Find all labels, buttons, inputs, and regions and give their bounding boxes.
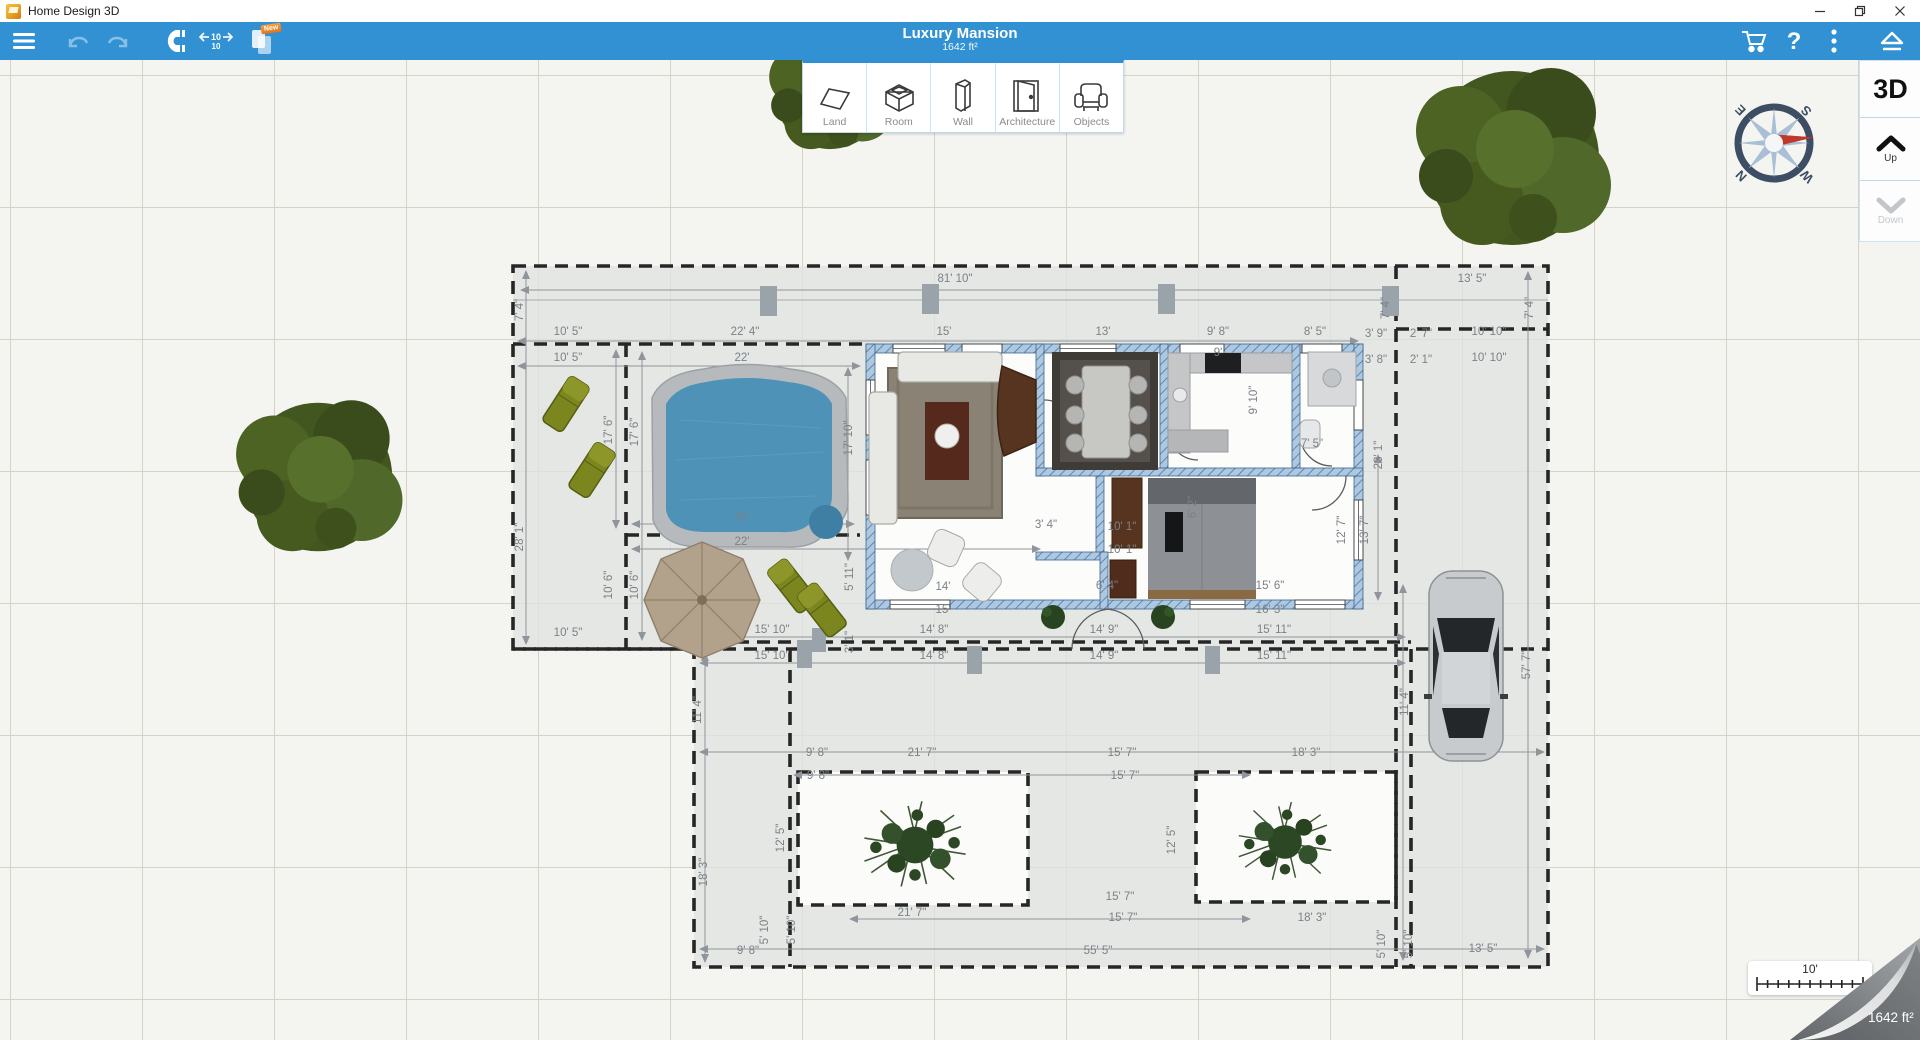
project-area: 1642 ft² [0,42,1920,53]
svg-text:22': 22' [735,352,750,364]
svg-text:13' 5": 13' 5" [1458,273,1487,285]
redo-button[interactable] [98,22,138,60]
svg-text:57' 7": 57' 7" [1521,651,1533,680]
dining-set[interactable] [1052,352,1158,470]
magnet-icon [163,28,189,54]
svg-text:81' 10": 81' 10" [937,273,972,285]
svg-text:18' 3": 18' 3" [698,858,710,887]
svg-text:11' 4": 11' 4" [1399,688,1411,716]
cart-icon [1741,29,1767,53]
svg-text:10' 1": 10' 1" [1108,521,1137,533]
land-icon [816,82,854,114]
tool-land[interactable]: Land [803,63,867,132]
wall-icon [950,78,976,114]
view-3d-button[interactable]: 3D [1860,61,1920,118]
svg-text:9' 8": 9' 8" [807,770,829,782]
svg-text:13' 7": 13' 7" [1359,516,1371,545]
svg-text:14' 8": 14' 8" [920,650,949,662]
floor-plan[interactable]: 81' 10"13' 5"7' 4"7' 4"7' 4"10' 5"22' 4"… [0,60,1920,1040]
svg-text:5' 10": 5' 10" [1376,930,1388,959]
svg-text:10' 1": 10' 1" [1108,544,1137,556]
redo-icon [106,32,130,50]
svg-text:15' 11": 15' 11" [1257,624,1291,636]
clipboard-button[interactable]: New [242,22,282,60]
svg-text:10: 10 [211,32,221,42]
main-toolbar: 10 10 New Luxury Mansion 1642 ft² ? [0,22,1920,60]
svg-text:22': 22' [735,536,750,548]
chevron-up-icon [1876,134,1906,152]
measure-tool-button[interactable]: 10 10 [196,22,236,60]
svg-text:15' 7": 15' 7" [1106,891,1135,903]
svg-text:3' 8": 3' 8" [1365,354,1387,366]
svg-text:14' 9": 14' 9" [1090,650,1119,662]
svg-text:22' 4": 22' 4" [731,326,760,338]
svg-text:15': 15' [936,604,951,616]
svg-text:28' 1": 28' 1" [514,523,526,552]
hamburger-icon [13,33,35,49]
svg-text:21' 7": 21' 7" [898,907,927,919]
svg-text:2' 7": 2' 7" [1410,328,1432,340]
svg-text:2' 1": 2' 1" [1410,354,1432,366]
svg-text:11' 4": 11' 4" [692,696,704,724]
svg-text:9' 8": 9' 8" [806,747,828,759]
svg-text:9' 10": 9' 10" [1248,386,1260,415]
patio-umbrella[interactable] [644,542,760,658]
compass-s: S [1798,102,1815,119]
tree-top-right[interactable] [1416,68,1611,245]
svg-text:10' 5": 10' 5" [554,627,583,639]
kebab-menu-icon [1831,29,1837,53]
corner-area-label: 1642 ft² [1868,1010,1914,1025]
more-options-button[interactable] [1814,22,1854,60]
svg-text:10' 5": 10' 5" [554,352,583,364]
svg-text:8' 5": 8' 5" [1304,326,1326,338]
svg-text:7' 5": 7' 5" [1301,438,1323,450]
build-tools-panel: Land Room Wall Architecture Objects [802,60,1124,133]
compass: N S W E [1722,91,1826,195]
car[interactable] [1424,571,1508,761]
room-icon [879,80,919,114]
svg-text:5' 10": 5' 10" [1403,930,1415,959]
floor-up-button[interactable]: Up [1860,118,1920,181]
svg-text:3' 4": 3' 4" [1035,519,1057,531]
svg-text:13' 5": 13' 5" [1469,943,1498,955]
export-button[interactable] [1872,22,1912,60]
window-title: Home Design 3D [28,4,119,18]
svg-text:10' 6": 10' 6" [629,571,641,600]
svg-text:10' 10": 10' 10" [1471,326,1506,338]
new-badge: New [260,23,281,35]
svg-text:3' 1": 3' 1" [844,631,856,653]
grand-piano[interactable] [997,366,1036,456]
svg-text:14': 14' [936,581,951,593]
svg-text:15' 7": 15' 7" [1108,747,1137,759]
door-icon [1010,78,1044,114]
swimming-pool[interactable] [652,365,848,548]
app-icon [6,4,21,19]
tree-left[interactable] [236,400,402,551]
svg-text:6' 4": 6' 4" [1096,580,1118,592]
minimize-button[interactable] [1800,0,1840,22]
svg-text:3' 9": 3' 9" [1365,328,1387,340]
svg-text:15' 7": 15' 7" [1109,912,1138,924]
app-window: 81' 10"13' 5"7' 4"7' 4"7' 4"10' 5"22' 4"… [0,0,1920,1040]
svg-text:15' 7": 15' 7" [1111,770,1140,782]
svg-text:17' 10": 17' 10" [843,420,855,455]
restore-button[interactable] [1840,0,1880,22]
svg-text:10' 6": 10' 6" [603,571,615,600]
svg-text:23' 1": 23' 1" [1373,441,1385,470]
svg-text:15' 10": 15' 10" [754,624,789,636]
floor-plan-canvas[interactable]: 81' 10"13' 5"7' 4"7' 4"7' 4"10' 5"22' 4"… [0,60,1920,1040]
svg-text:55' 5": 55' 5" [1084,945,1113,957]
tool-architecture[interactable]: Architecture [996,63,1060,132]
measure-icon: 10 10 [199,31,233,51]
project-title-block: Luxury Mansion 1642 ft² [0,22,1920,60]
svg-text:?: ? [1787,28,1802,54]
svg-text:5' 10": 5' 10" [786,916,798,945]
wardrobe[interactable] [1112,478,1142,548]
svg-text:13': 13' [1096,326,1111,338]
tool-objects[interactable]: Objects [1060,63,1123,132]
svg-text:9' 8": 9' 8" [737,945,759,957]
svg-text:16' 3": 16' 3" [1256,604,1285,616]
svg-text:7' 4": 7' 4" [1524,297,1536,319]
svg-text:10' 10": 10' 10" [1471,352,1506,364]
question-icon: ? [1784,28,1804,54]
svg-text:18' 3": 18' 3" [1292,747,1321,759]
menu-button[interactable] [4,22,44,60]
svg-text:9': 9' [1214,347,1223,359]
svg-text:5' 11": 5' 11" [844,563,856,591]
svg-text:14' 9": 14' 9" [1090,624,1119,636]
svg-text:7' 4": 7' 4" [514,299,526,321]
svg-text:12' 7": 12' 7" [1336,516,1348,545]
undo-button[interactable] [58,22,98,60]
project-title: Luxury Mansion [0,25,1920,42]
undo-icon [66,32,90,50]
svg-text:17' 6": 17' 6" [629,418,641,447]
svg-text:9' 8": 9' 8" [1207,326,1229,338]
svg-text:5' 10": 5' 10" [759,916,771,945]
chevron-down-icon [1876,196,1906,214]
magnet-snap-button[interactable] [156,22,196,60]
eject-icon [1880,31,1904,51]
store-cart-button[interactable] [1734,22,1774,60]
svg-text:12' 5": 12' 5" [1166,826,1178,855]
svg-text:21' 7": 21' 7" [908,747,937,759]
svg-text:18' 3": 18' 3" [1298,912,1327,924]
window-titlebar: Home Design 3D [0,0,1920,22]
svg-text:15' 6": 15' 6" [1256,580,1285,592]
help-button[interactable]: ? [1774,22,1814,60]
svg-text:14' 8": 14' 8" [920,624,949,636]
svg-text:12' 5": 12' 5" [775,824,787,853]
svg-text:15' 10": 15' 10" [754,650,789,662]
svg-text:15' 11": 15' 11" [1257,650,1291,662]
svg-text:22': 22' [735,511,750,523]
svg-text:17' 6": 17' 6" [603,416,615,445]
floor-down-button[interactable]: Down [1860,181,1920,241]
svg-text:7' 4": 7' 4" [1380,297,1392,319]
armchair-icon [1071,80,1111,114]
close-button[interactable] [1880,0,1920,22]
svg-text:10' 5": 10' 5" [554,326,583,338]
view-controls-panel: 3D Up Down [1859,60,1920,242]
tool-room[interactable]: Room [867,63,931,132]
tool-wall[interactable]: Wall [931,63,995,132]
svg-text:15': 15' [937,326,952,338]
svg-text:6' 2": 6' 2" [1187,496,1199,518]
living-room-rug[interactable] [888,368,1002,518]
page-curl[interactable]: 1642 ft² [1720,910,1920,1040]
